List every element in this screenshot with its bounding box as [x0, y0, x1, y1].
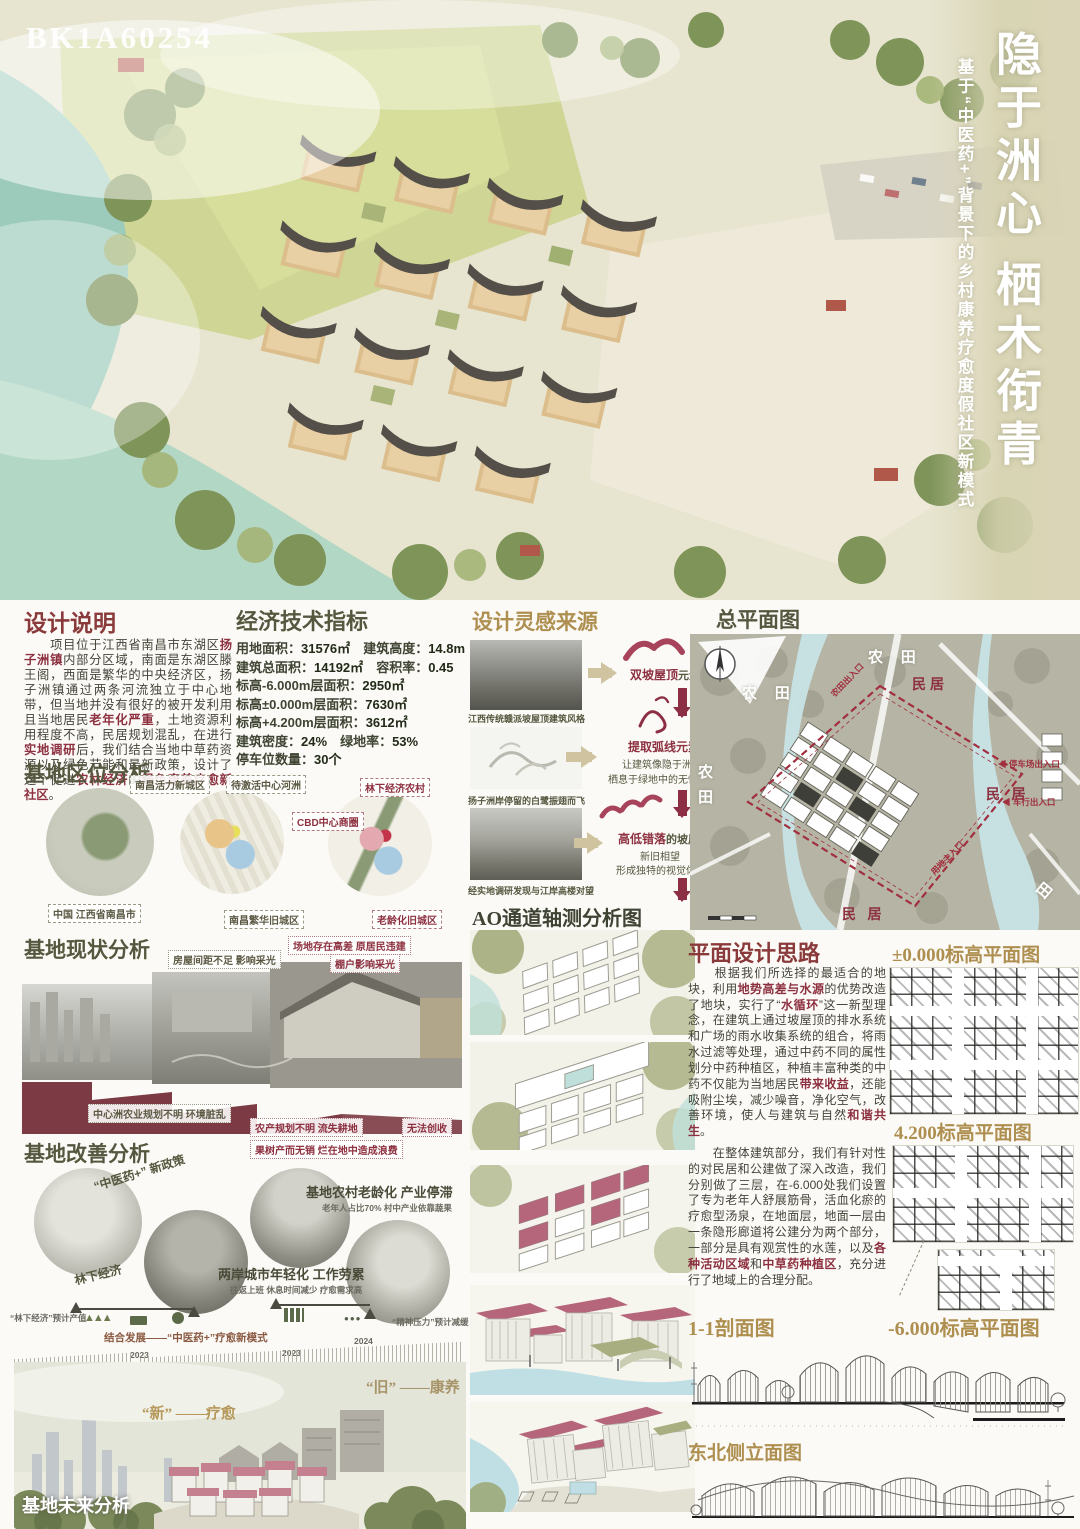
inspiration-result-3-line1: 新旧相望: [640, 848, 680, 863]
plan-600-heading: -6.000标高平面图: [888, 1312, 1040, 1341]
eco-row: 标高-6.000m层面积：2950㎡: [236, 677, 464, 696]
timeline-line: [76, 1308, 194, 1310]
truck-icon: [130, 1316, 147, 1325]
eco-row: 用地面积：31576㎡ 建筑高度：14.8m: [236, 640, 464, 659]
masterplan-map: 农 田 农 田 农田 田 民居 民 居 民 居 农田出入口 ◀ 停车场出入口 ◀…: [690, 634, 1080, 930]
location-map-china: [46, 788, 154, 896]
trees-icon: ▲▲▲: [84, 1312, 111, 1324]
axon-view-2: [470, 1042, 695, 1150]
axon-view-1: [470, 930, 695, 1035]
perspective-drawing: [470, 1402, 695, 1512]
map-entry-label: ◀ 停车场出入口: [998, 758, 1060, 770]
location-label: 老龄化旧城区: [372, 910, 442, 929]
right-arrow-icon: [588, 668, 612, 678]
improve-label-aging: 基地农村老龄化 产业停滞: [306, 1182, 453, 1201]
section-drawing: [688, 1342, 1078, 1434]
elevation-svg: [688, 1466, 1078, 1524]
inspiration-caption-3: 经实地调研发现与江岸高楼对望: [468, 884, 594, 897]
inspiration-photo-riverbank: [470, 808, 582, 880]
axon-drawing: [470, 1042, 695, 1150]
plan-design-paragraph-1: 根据我们所选择的最适合的地块，利用地势高差与水源的优势改造了地块，实行了“水循环…: [688, 966, 886, 1140]
eco-heading: 经济技术指标: [236, 604, 368, 636]
timeline-label-relief: “精神压力”预计减缓: [392, 1316, 469, 1328]
future-image: “旧” ——康养 “新” ——疗愈 基地未来分析: [14, 1362, 466, 1529]
section-heading: 1-1剖面图: [688, 1312, 775, 1341]
poster-title: 隐于洲心 栖木衔青: [982, 30, 1048, 550]
perspective-drawing: [470, 1285, 695, 1395]
masterplan-heading: 总平面图: [716, 604, 800, 634]
map-label-farmland: 农 田: [742, 682, 797, 703]
staggered-roof-icon: [598, 792, 668, 822]
status-label: 中心洲农业规划不明 环境脏乱: [88, 1104, 231, 1123]
elevation-heading: 东北侧立面图: [688, 1438, 802, 1465]
map-label-residence: 民 居: [842, 904, 886, 924]
improve-photo-forest: [144, 1210, 248, 1314]
presentation-board: BK1A60254 隐于洲心 栖木衔青 基于“中医药+”背景下的乡村康养疗愈度假…: [0, 0, 1080, 1529]
inspiration-heading: 设计灵感来源: [472, 606, 598, 636]
location-map-nanchang: [180, 790, 284, 894]
down-arrow-icon: [678, 790, 687, 816]
down-arrow-icon: [678, 688, 687, 716]
axon-heading: AO通道轴测分析图: [472, 902, 642, 931]
people-icon: ●●●: [344, 1314, 362, 1323]
future-heading: 基地未来分析: [22, 1492, 130, 1518]
double-slope-roof-icon: [622, 634, 686, 662]
axon-drawing: [470, 930, 695, 1035]
map-entry-label: ◀ 车行出入口: [1002, 796, 1055, 808]
improve-label-young-sub: 往返上班 休息时间减少 疗愈需求高: [230, 1284, 362, 1296]
location-label: 中国 江西省南昌市: [48, 904, 141, 923]
improve-label-young: 两岸城市年轻化 工作劳累: [218, 1264, 365, 1283]
right-arrow-icon: [574, 838, 598, 848]
curve-extract-icon: [630, 692, 672, 734]
buildings-icon: [284, 1308, 304, 1322]
up-arrow-icon: [70, 1296, 82, 1313]
location-map-site: [328, 792, 432, 896]
location-label: 南昌活力新城区: [130, 775, 210, 794]
section-svg: [688, 1342, 1078, 1434]
timeline-year: 2024: [354, 1336, 373, 1346]
status-label: 无法创收: [402, 1118, 452, 1137]
location-label: 林下经济农村: [360, 778, 430, 797]
map-label-residence: 民居: [912, 674, 948, 694]
timeline-line: [276, 1304, 370, 1306]
right-arrow-icon: [566, 752, 592, 762]
status-label: 房屋间距不足 影响采光: [168, 950, 281, 969]
improve-label-aging-sub: 老年人占比70% 村中产业依靠蔬果: [322, 1202, 452, 1214]
status-label: 果树产而无销 烂在地中造成浪费: [250, 1140, 403, 1159]
plan-420-heading: 4.200标高平面图: [894, 1118, 1032, 1145]
perspective-view-1: [470, 1285, 695, 1395]
coins-icon: [172, 1312, 184, 1324]
eco-row: 标高+4.200m层面积：3612㎡: [236, 714, 464, 733]
poster-subtitle: 基于“中医药+”背景下的乡村康养疗愈度假社区新模式: [952, 58, 976, 598]
plan-000-drawing: [890, 968, 1078, 1114]
status-label: 棚户影响采光: [330, 954, 400, 973]
project-code: BK1A60254: [26, 20, 213, 56]
plan-design-heading: 平面设计思路: [688, 936, 820, 968]
masterplan-drawing: [690, 634, 1080, 930]
timeline-label-output: “林下经济”预计产值: [10, 1312, 87, 1324]
perspective-view-2: [470, 1402, 695, 1512]
plan-600-drawing: [938, 1250, 1054, 1310]
elevation-drawing: [688, 1466, 1078, 1524]
eco-row: 建筑总面积：14192㎡ 容积率：0.45: [236, 659, 464, 678]
plan-420-drawing: [893, 1146, 1073, 1242]
location-label: CBD中心商圈: [292, 812, 364, 831]
design-note-heading: 设计说明: [24, 604, 116, 638]
down-arrow-icon: [678, 878, 687, 900]
up-arrow-icon: [270, 1292, 282, 1309]
future-old-label: “旧” ——康养: [366, 1376, 460, 1397]
future-new-label: “新” ——疗愈: [142, 1402, 236, 1423]
plan-000-heading: ±0.000标高平面图: [892, 940, 1040, 967]
location-label: 待激活中心河洲: [226, 775, 306, 794]
status-label: 农产规划不明 流失耕地: [250, 1118, 363, 1137]
hero-illustration: [0, 0, 1080, 600]
eco-row: 停车位数量：30个: [236, 751, 464, 770]
plan-design-paragraph-2: 在整体建筑部分，我们有针对性的对民居和公建做了深入改造，我们分别做了三层，在-6…: [688, 1146, 886, 1288]
map-label-farmland: 农田: [694, 764, 715, 814]
eco-table: 用地面积：31576㎡ 建筑高度：14.8m 建筑总面积：14192㎡ 容积率：…: [236, 640, 464, 770]
axon-view-3: [470, 1165, 695, 1273]
scale-bar: [708, 916, 756, 920]
inspiration-photo-traditional-roofs: [470, 640, 582, 710]
map-label-farmland: 农 田: [868, 646, 923, 667]
timeline-label-combine: 结合发展——“中医药+”疗愈新模式: [104, 1330, 268, 1345]
inspiration-caption-2: 扬子洲岸停留的白鹭振翅而飞: [468, 794, 585, 807]
hero-render: BK1A60254 隐于洲心 栖木衔青 基于“中医药+”背景下的乡村康养疗愈度假…: [0, 0, 1080, 600]
location-label: 南昌繁华旧城区: [224, 910, 304, 929]
status-label: 场地存在高差 原居民违建: [288, 936, 411, 955]
eco-row: 建筑密度：24% 绿地率：53%: [236, 733, 464, 752]
eco-row: 标高±0.000m层面积：7630㎡: [236, 696, 464, 715]
axon-drawing: [470, 1165, 695, 1273]
status-heading: 基地现状分析: [24, 934, 150, 964]
inspiration-caption-1: 江西传统赣派坡屋顶建筑风格: [468, 712, 585, 725]
improve-heading: 基地改善分析: [24, 1138, 150, 1168]
